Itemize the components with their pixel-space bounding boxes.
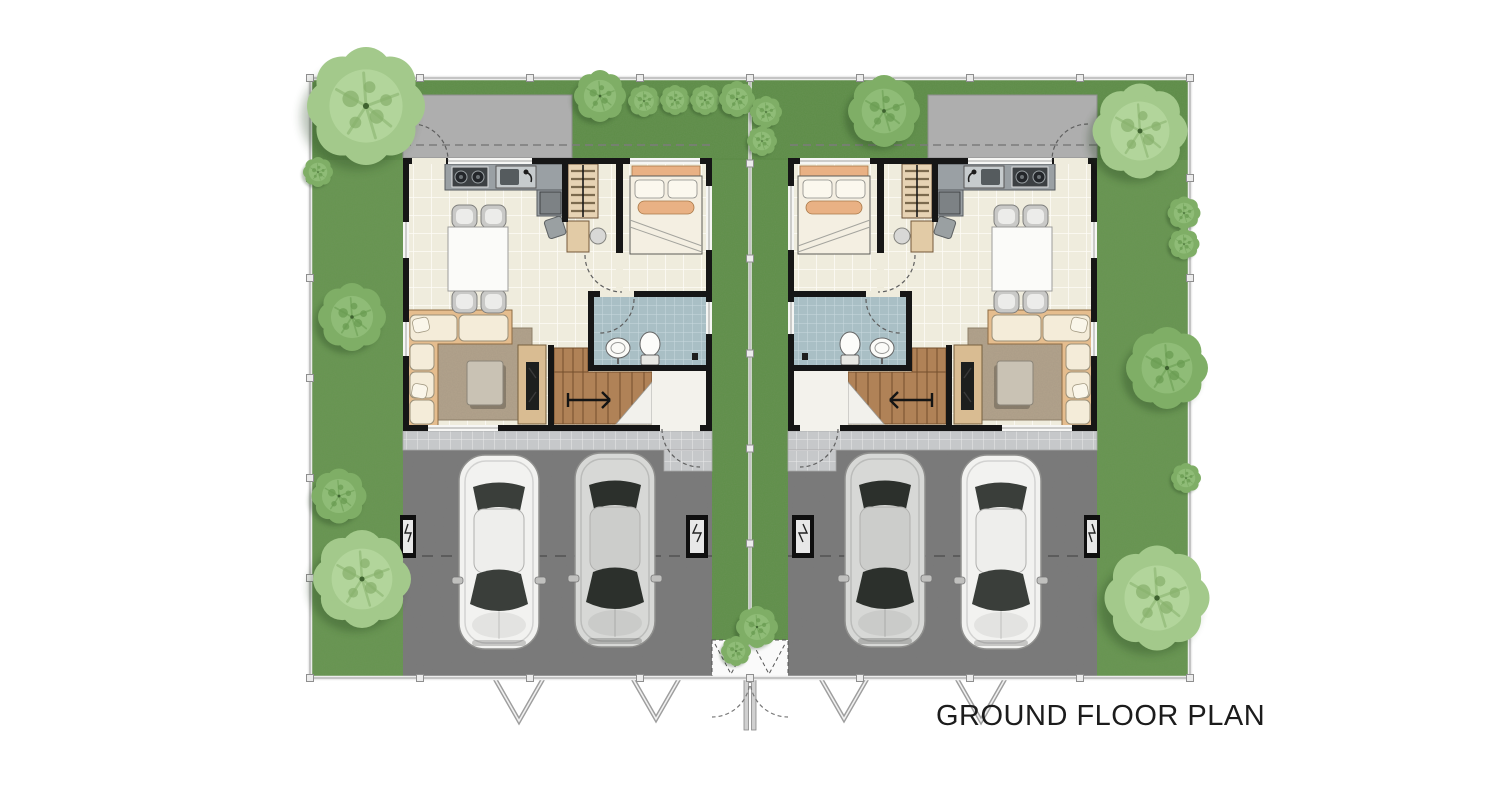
- floor-plan-page: GROUND FLOOR PLAN: [0, 0, 1500, 785]
- unit-right: [788, 95, 1100, 721]
- unit-left: [400, 95, 712, 721]
- plan-title: GROUND FLOOR PLAN: [936, 700, 1265, 733]
- floor-plan-canvas: [0, 0, 1500, 785]
